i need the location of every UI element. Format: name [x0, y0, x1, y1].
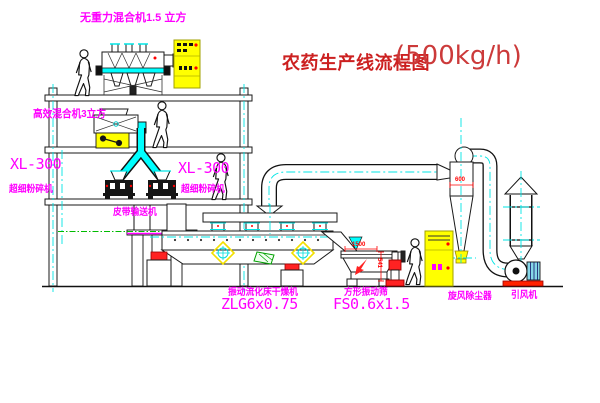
exhaust-duct — [269, 172, 450, 212]
induced-draft-fan — [503, 260, 543, 286]
person-second-floor — [153, 102, 169, 148]
person-top-floor — [75, 50, 91, 96]
screen-model-label: FS0.6x1.5 — [333, 297, 410, 312]
belt-conveyor-label: 皮带输送机 — [113, 208, 157, 218]
mill-right-model-label: XL-300 — [178, 161, 229, 176]
screen-length-dim: 1500 — [352, 242, 365, 248]
cyclone-name-label: 旋风除尘器 — [448, 292, 492, 302]
diagram-capacity: (500kg/h) — [395, 41, 522, 71]
fan-motor — [527, 262, 540, 280]
top-mixer-label: 无重力混合机1.5 立方 — [80, 13, 186, 24]
screen-height-dim: 541 — [376, 258, 382, 268]
gravity-free-mixer — [96, 44, 178, 95]
mid-mixer-label: 高效混合机3立方 — [33, 109, 106, 120]
control-cabinet-upper — [174, 40, 200, 88]
fan-name-label: 引风机 — [511, 291, 537, 301]
cyclone-outlet-duct — [468, 156, 512, 270]
mill-left-model-label: XL-300 — [10, 157, 61, 172]
mill-left — [103, 171, 135, 199]
exhaust-stack — [503, 171, 540, 263]
mill-right-name-label: 超细粉碎机 — [181, 185, 225, 195]
flow-diagram: 无重力混合机1.5 立方 农药生产线流程图 (500kg/h) 高效混合机3立方… — [0, 0, 600, 403]
person-ground — [406, 239, 422, 285]
dryer-model-label: ZLG6x0.75 — [221, 297, 298, 312]
fan-base — [503, 281, 543, 286]
mill-right — [146, 171, 178, 199]
mill-left-name-label: 超细粉碎机 — [9, 185, 53, 195]
cyclone-width-dim: 600 — [455, 177, 465, 183]
control-cabinet-lower — [425, 231, 453, 286]
